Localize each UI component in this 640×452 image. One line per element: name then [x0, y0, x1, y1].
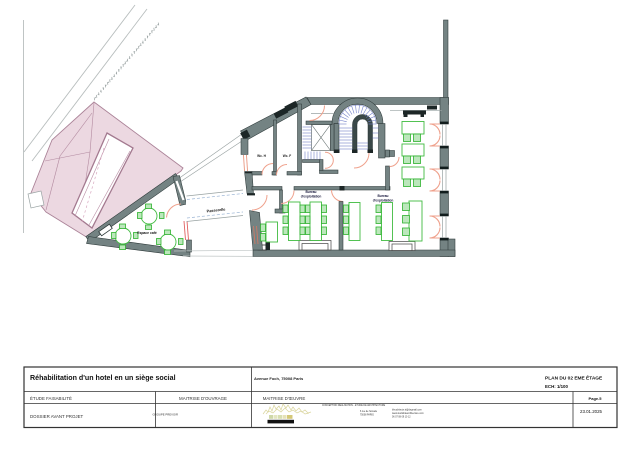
svg-text:DOSSIER AVANT PROJET: DOSSIER AVANT PROJET [30, 414, 84, 419]
svg-text:ÉTUDE FAISABILITÉ: ÉTUDE FAISABILITÉ [30, 396, 72, 401]
svg-text:ECH: 1/100: ECH: 1/100 [545, 384, 568, 389]
svg-text:23.01.2025: 23.01.2025 [580, 409, 603, 414]
svg-text:Bureau: Bureau [378, 194, 389, 198]
svg-text:bleuchitecte.tr@degmail.com: bleuchitecte.tr@degmail.com [392, 409, 422, 412]
svg-text:MAITRISE D'ŒUVRE: MAITRISE D'ŒUVRE [263, 396, 306, 401]
svg-text:Page.5: Page.5 [589, 396, 603, 401]
svg-text:CONCEPTION REALISATION - ÉTUDE: CONCEPTION REALISATION - ÉTUDE DE ARCHIT… [322, 404, 386, 407]
svg-text:d'exploitation: d'exploitation [373, 199, 394, 203]
svg-text:www.studioblearchitecture.com: www.studioblearchitecture.com [392, 412, 424, 415]
svg-text:75008 PARIS: 75008 PARIS [360, 414, 374, 417]
svg-text:MAITRISE D'OUVRAGE: MAITRISE D'OUVRAGE [179, 396, 227, 401]
svg-text:Wc. H: Wc. H [257, 154, 267, 158]
svg-text:d'exploitation: d'exploitation [301, 195, 322, 199]
svg-text:GROUPE PREVOIR: GROUPE PREVOIR [153, 413, 179, 417]
svg-text:Espace café: Espace café [137, 231, 157, 235]
svg-text:6 rue de l'arcade: 6 rue de l'arcade [360, 410, 378, 413]
svg-text:06 07 08 09 10 12: 06 07 08 09 10 12 [392, 417, 411, 419]
svg-text:Wc. F: Wc. F [283, 154, 292, 158]
svg-text:Bureau: Bureau [306, 190, 317, 194]
svg-text:Réhabilitation d'un hotel en u: Réhabilitation d'un hotel en un siège so… [30, 374, 176, 382]
svg-text:Avenue Foch, 75008 Paris: Avenue Foch, 75008 Paris [254, 376, 304, 381]
